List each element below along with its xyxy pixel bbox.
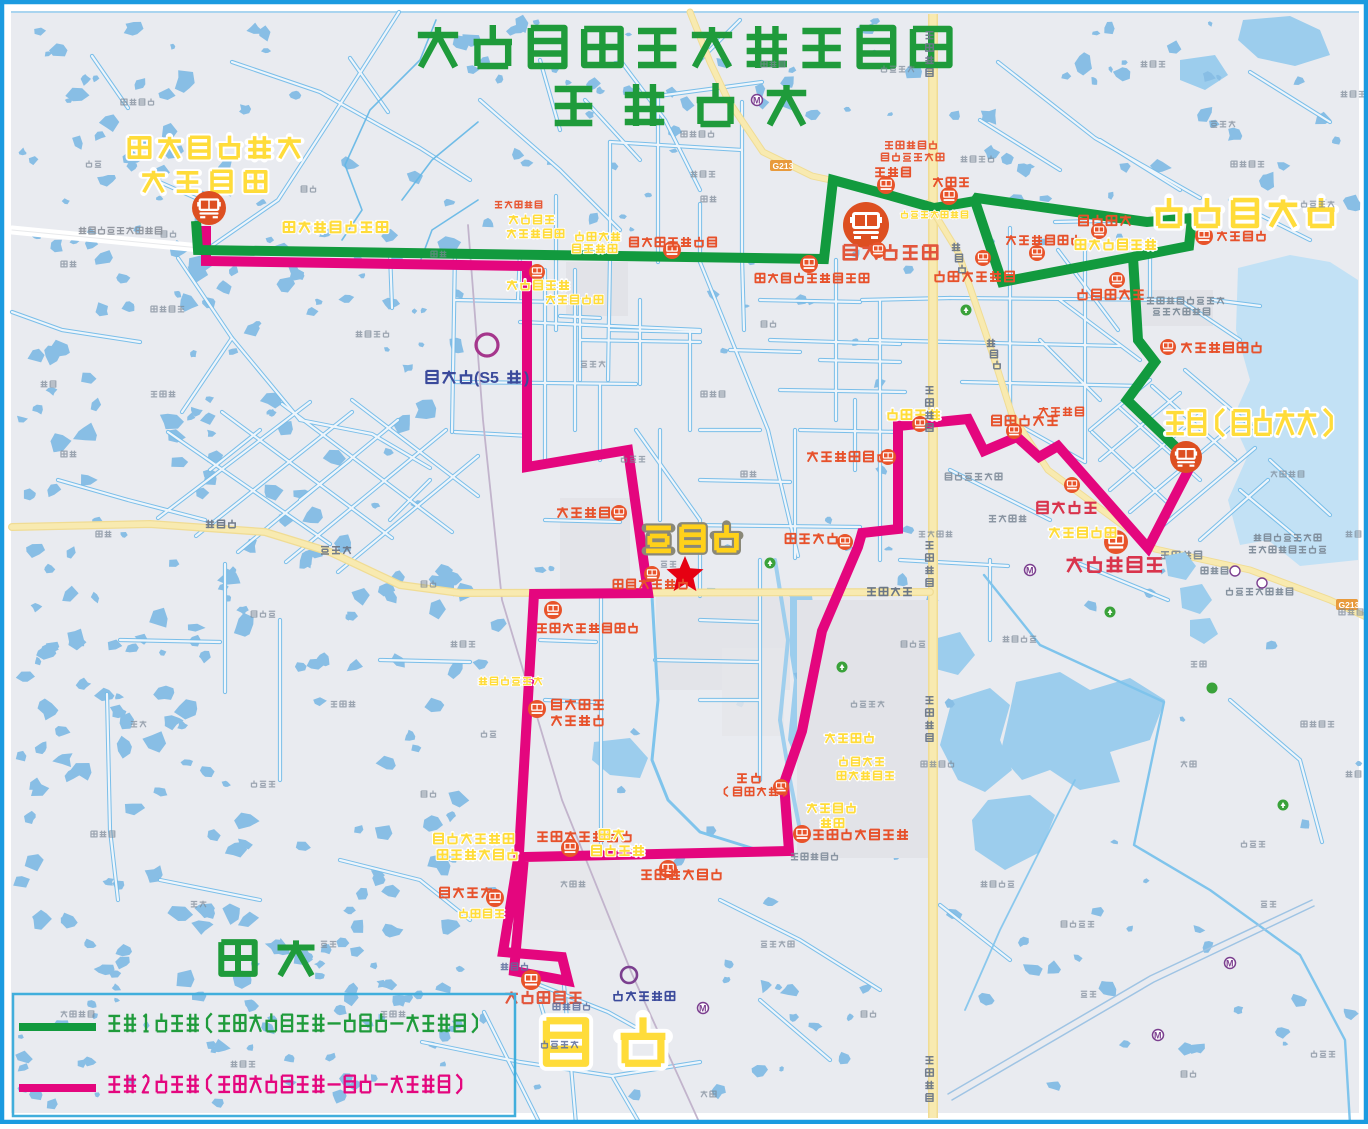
svg-text:M: M <box>699 1004 707 1014</box>
svg-text:M: M <box>1226 959 1234 969</box>
svg-text:M: M <box>753 96 761 106</box>
svg-text:M: M <box>1154 1031 1162 1041</box>
svg-text:M: M <box>1026 566 1034 576</box>
svg-text:G213: G213 <box>773 161 794 171</box>
svg-text:): ) <box>524 370 529 387</box>
svg-text:(S5: (S5 <box>474 370 499 387</box>
